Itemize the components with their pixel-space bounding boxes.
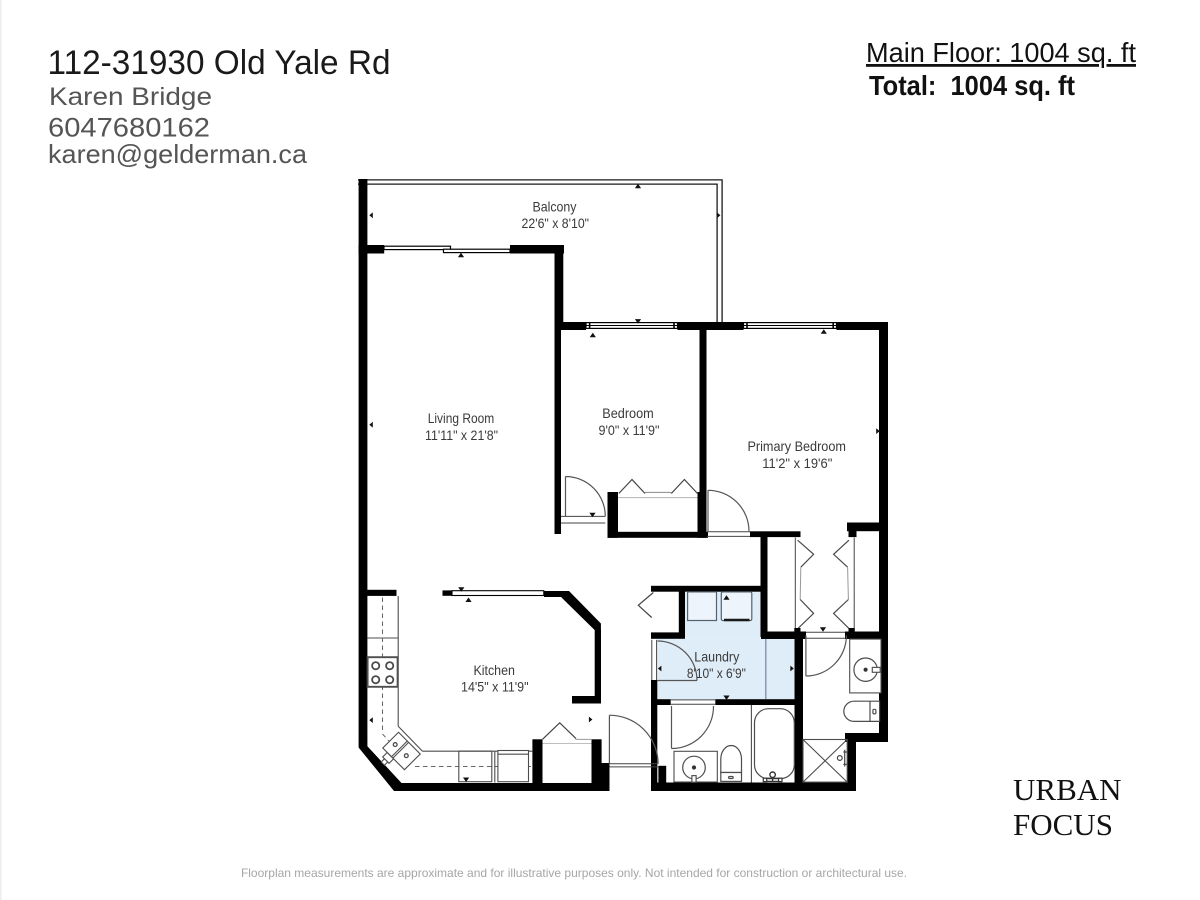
- svg-text:112-31930 Old Yale Rd: 112-31930 Old Yale Rd: [48, 44, 391, 82]
- svg-text:Laundry: Laundry: [694, 649, 739, 665]
- svg-text:Main Floor: 1004 sq. ft: Main Floor: 1004 sq. ft: [866, 37, 1136, 68]
- svg-text:11'2" x 19'6": 11'2" x 19'6": [762, 455, 832, 471]
- svg-text:Balcony: Balcony: [533, 199, 577, 215]
- svg-text:6047680162: 6047680162: [48, 113, 210, 143]
- svg-text:Bedroom: Bedroom: [602, 405, 654, 421]
- svg-text:Kitchen: Kitchen: [473, 662, 515, 678]
- svg-text:Total: 1004 sq. ft: Total: 1004 sq. ft: [869, 70, 1075, 101]
- svg-text:22'6" x 8'10": 22'6" x 8'10": [522, 215, 590, 231]
- svg-text:Primary Bedroom: Primary Bedroom: [747, 438, 846, 454]
- svg-text:Floorplan measurements are app: Floorplan measurements are approximate a…: [241, 866, 907, 880]
- svg-text:karen@gelderman.ca: karen@gelderman.ca: [48, 139, 308, 169]
- svg-text:8'10" x 6'9": 8'10" x 6'9": [687, 665, 746, 681]
- svg-text:11'11" x 21'8": 11'11" x 21'8": [425, 427, 498, 443]
- svg-text:9'0" x 11'9": 9'0" x 11'9": [599, 422, 660, 438]
- svg-text:Living Room: Living Room: [428, 410, 495, 426]
- svg-text:URBAN: URBAN: [1013, 772, 1122, 807]
- svg-text:Karen Bridge: Karen Bridge: [49, 83, 212, 111]
- svg-text:14'5" x 11'9": 14'5" x 11'9": [461, 679, 529, 695]
- svg-text:FOCUS: FOCUS: [1013, 807, 1113, 842]
